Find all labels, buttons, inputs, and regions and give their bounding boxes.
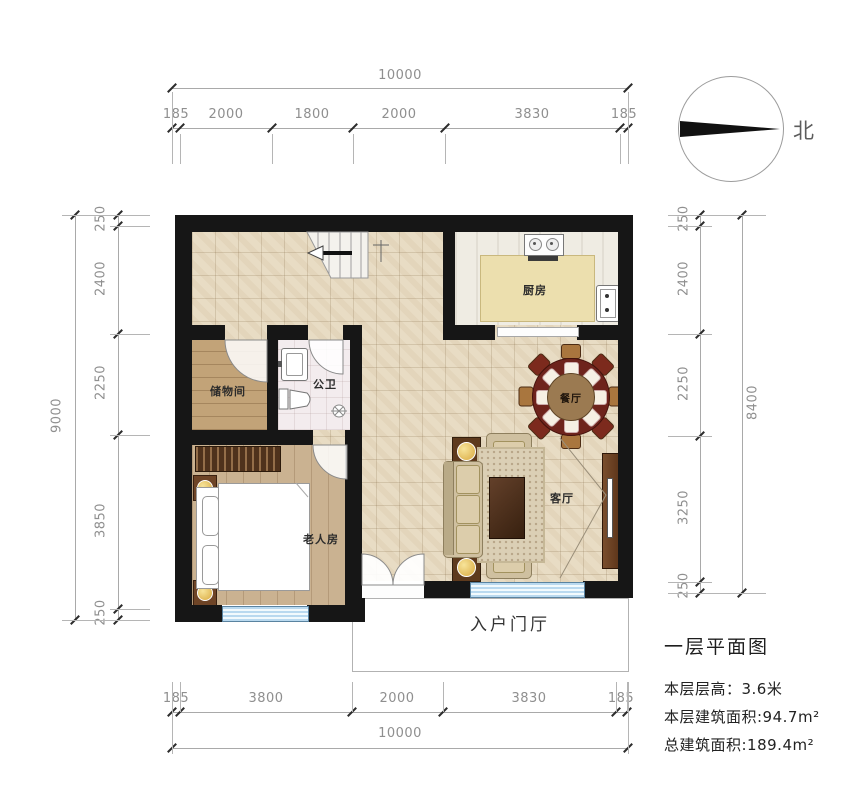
kitchen-sink-icon — [596, 285, 620, 322]
room-label-bathroom: 公卫 — [313, 376, 337, 392]
sofa — [443, 461, 483, 558]
room-label-foyer: 入户门厅 — [445, 610, 575, 635]
wall-bath-right — [350, 325, 362, 445]
dim-bottom-seg: 3800 — [241, 691, 291, 706]
dim-right-seg: 250 — [677, 189, 692, 249]
north-compass — [678, 76, 784, 182]
dim-left-total: 9000 — [50, 386, 65, 446]
bed-duvet — [218, 483, 310, 591]
dimension-linework — [353, 134, 354, 164]
burner-icon — [546, 238, 559, 251]
bath-sink-icon — [281, 348, 308, 381]
dimension-linework — [668, 334, 712, 335]
lamp-icon — [457, 442, 476, 461]
wall-bottom-living — [424, 581, 470, 598]
dimension-linework — [352, 682, 353, 712]
dim-top-seg: 3830 — [507, 107, 557, 122]
dimension-linework — [668, 436, 712, 437]
dim-top-seg: 2000 — [374, 107, 424, 122]
dimension-linework — [443, 682, 444, 712]
wall-bedroom-right — [345, 430, 362, 605]
north-label: 北 — [793, 115, 814, 145]
wall-bedroom-top — [175, 430, 313, 445]
dim-top-seg: 2000 — [201, 107, 251, 122]
pillow — [202, 496, 219, 536]
dimension-linework — [668, 593, 766, 594]
total-area-note: 总建筑面积:189.4m² — [664, 734, 814, 755]
dimension-linework — [668, 215, 766, 216]
dimension-linework — [172, 128, 629, 129]
dim-left-seg: 2250 — [94, 353, 109, 413]
dimension-linework — [700, 215, 701, 593]
stove-hood — [528, 256, 558, 261]
dim-left-seg: 250 — [94, 583, 109, 643]
floor-height-note: 本层层高：3.6米 — [664, 678, 782, 699]
dimension-linework — [110, 226, 150, 227]
wall-kitchen-bottom — [577, 325, 633, 340]
dim-right-seg: 2250 — [677, 354, 692, 414]
dim-bottom-seg: 185 — [596, 691, 646, 706]
dimension-linework — [668, 226, 712, 227]
dining-label-area: 餐厅 — [547, 373, 595, 421]
dim-top-seg: 185 — [599, 107, 649, 122]
stove-icon — [524, 234, 564, 256]
dimension-linework — [172, 712, 628, 713]
room-label-living: 客厅 — [550, 490, 574, 506]
dim-left-seg: 250 — [94, 189, 109, 249]
room-label-storage: 储物间 — [210, 383, 246, 399]
dim-right-seg: 3250 — [677, 478, 692, 538]
dimension-linework — [110, 334, 150, 335]
dim-top-seg: 185 — [151, 107, 201, 122]
dimension-linework — [75, 215, 76, 621]
dining-chair — [561, 344, 581, 359]
dimension-linework — [616, 682, 617, 712]
wall-left — [175, 215, 192, 622]
dimension-linework — [118, 215, 119, 621]
tv-icon — [607, 478, 613, 538]
wall-kitchen-left — [443, 232, 455, 337]
dimension-linework — [172, 748, 628, 749]
wall-storage-bath-divider — [267, 340, 278, 430]
dimension-linework — [668, 582, 712, 583]
dimension-linework — [172, 88, 629, 89]
dim-bottom-seg: 2000 — [372, 691, 422, 706]
dimension-linework — [445, 134, 446, 164]
pillow — [202, 545, 219, 585]
dimension-linework — [110, 435, 150, 436]
wall-bottom-bedroom — [175, 605, 222, 622]
room-label-kitchen: 厨房 — [523, 282, 547, 298]
north-arrow-icon — [679, 77, 783, 181]
wall-top — [175, 215, 633, 232]
dimension-linework — [628, 92, 629, 164]
dim-bottom-seg: 185 — [151, 691, 201, 706]
dim-right-seg: 250 — [677, 556, 692, 616]
dim-top-total: 10000 — [375, 68, 425, 83]
floor-plan-page: 10000 185 2000 1800 2000 3830 185 10000 … — [0, 0, 860, 811]
wall-right — [618, 215, 633, 598]
wall-kitchen-bottom — [443, 325, 495, 340]
wall-bottom-living — [583, 581, 633, 598]
floor-area-note: 本层建筑面积:94.7m² — [664, 706, 820, 727]
entry-door-gap — [362, 581, 424, 598]
dim-bottom-total: 10000 — [375, 726, 425, 741]
room-label-dining: 餐厅 — [560, 390, 582, 405]
kitchen-opening-threshold — [497, 327, 579, 337]
dimension-linework — [628, 682, 629, 754]
dim-top-seg: 1800 — [287, 107, 337, 122]
wall-bath-top — [267, 325, 308, 340]
dim-right-seg: 2400 — [677, 249, 692, 309]
dim-left-seg: 3850 — [94, 491, 109, 551]
burner-icon — [529, 238, 542, 251]
room-label-bedroom: 老人房 — [303, 531, 339, 547]
coffee-table — [489, 477, 525, 539]
living-window — [470, 582, 585, 598]
dining-chair — [561, 434, 581, 449]
dimension-linework — [180, 134, 181, 164]
dimension-linework — [742, 215, 743, 593]
bedroom-window — [222, 606, 309, 622]
dim-bottom-seg: 3830 — [504, 691, 554, 706]
lamp-icon — [457, 558, 476, 577]
dimension-linework — [62, 620, 150, 621]
dimension-linework — [172, 682, 173, 754]
dim-right-total: 8400 — [746, 373, 761, 433]
dimension-linework — [110, 609, 150, 610]
dimension-linework — [172, 92, 173, 164]
dimension-linework — [62, 215, 150, 216]
dimension-linework — [620, 134, 621, 164]
drawing-title: 一层平面图 — [664, 632, 769, 659]
dimension-linework — [180, 682, 181, 712]
dimension-linework — [272, 134, 273, 164]
wall-storage-top — [175, 325, 225, 340]
wardrobe — [195, 446, 281, 472]
dim-left-seg: 2400 — [94, 249, 109, 309]
